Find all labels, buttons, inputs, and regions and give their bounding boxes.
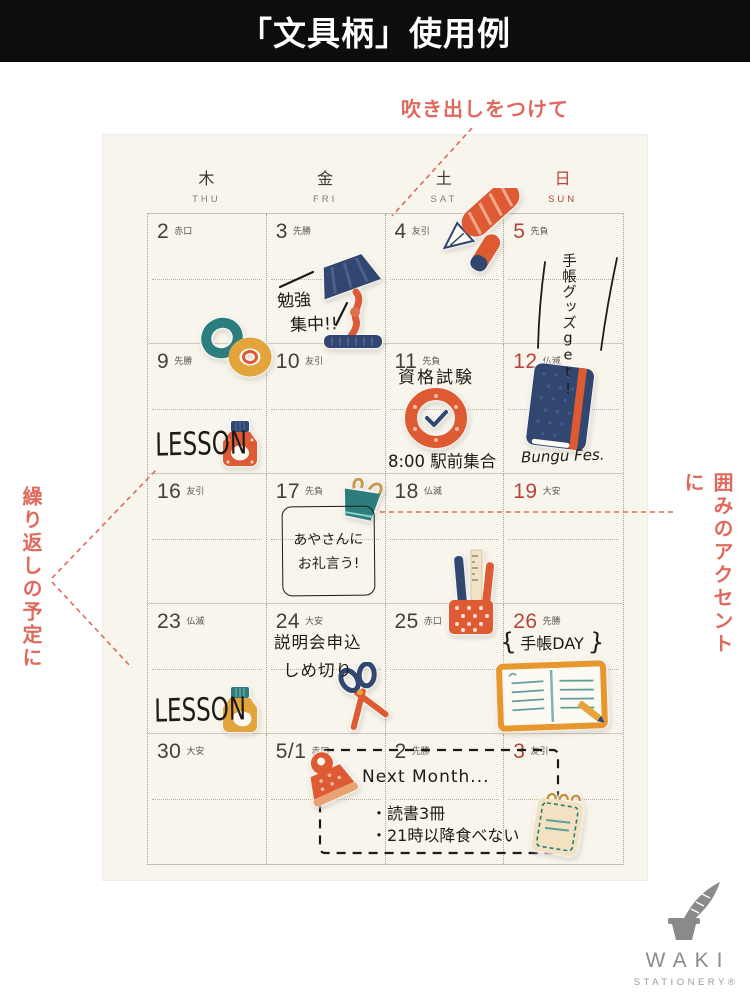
- logo-name: WAKI: [618, 949, 750, 973]
- note-thanks-box: あやさんに お礼言う!: [282, 506, 376, 597]
- weekday-fri: 金 FRI: [266, 165, 385, 205]
- calendar-cell: 16友引: [148, 474, 267, 604]
- note-lesson: LESSON: [155, 426, 247, 464]
- note-meetup: 8:00 駅前集合: [388, 448, 496, 472]
- note-study: 集中!!: [290, 309, 338, 336]
- annotation-accent: 囲みのアクセントに: [678, 472, 736, 672]
- note-exam: 資格試験: [398, 363, 474, 388]
- note-bungu-fes: Bungu Fes.: [521, 446, 605, 467]
- note-lesson: LESSON: [154, 692, 246, 730]
- quill-inkwell-logo-icon: [644, 880, 724, 942]
- weekday-header: 木 THU 金 FRI 土 SAT 日 SUN: [147, 165, 622, 205]
- note-techo-day: { 手帳DAY }: [500, 628, 604, 656]
- washi-tape-sticker: [196, 316, 278, 378]
- fountain-pen-sticker: [432, 188, 547, 273]
- note-next-month: Next Month...: [362, 767, 490, 787]
- annotation-repeat: 繰り返しの予定に: [16, 486, 45, 676]
- note-deadline: しめ切り: [283, 657, 353, 681]
- memo-pad-sticker: [530, 788, 588, 858]
- note-todo: ・読書3冊: [371, 800, 445, 824]
- logo-subtitle: STATIONERY®: [618, 977, 750, 988]
- note-deadline: 説明会申込: [274, 629, 362, 653]
- paper-clip-sticker: [296, 748, 360, 808]
- clock-sticker: [405, 388, 467, 448]
- annotation-callout: 吹き出しをつけて: [380, 93, 590, 122]
- brand-logo: WAKI STATIONERY®: [618, 880, 750, 988]
- calendar-cell: 19大安: [504, 474, 623, 604]
- calendar-cell: 10友引: [267, 344, 386, 474]
- note-todo: ・21時以降食べない: [371, 822, 519, 846]
- page: 「文具柄」使用例 吹き出しをつけて 繰り返しの予定に 囲みのアクセントに 木 T…: [0, 0, 750, 1000]
- open-notebook-sticker: [496, 660, 608, 734]
- page-title: 「文具柄」使用例: [239, 7, 511, 55]
- banner: 「文具柄」使用例: [0, 0, 750, 62]
- desk-lamp-sticker: [314, 248, 392, 350]
- pen-stand-sticker: [444, 548, 498, 636]
- note-techo-goods: 手帳グッズget!: [558, 253, 579, 399]
- note-study: 勉強: [276, 285, 311, 312]
- calendar-cell: 30大安: [148, 734, 267, 864]
- weekday-thu: 木 THU: [147, 165, 266, 205]
